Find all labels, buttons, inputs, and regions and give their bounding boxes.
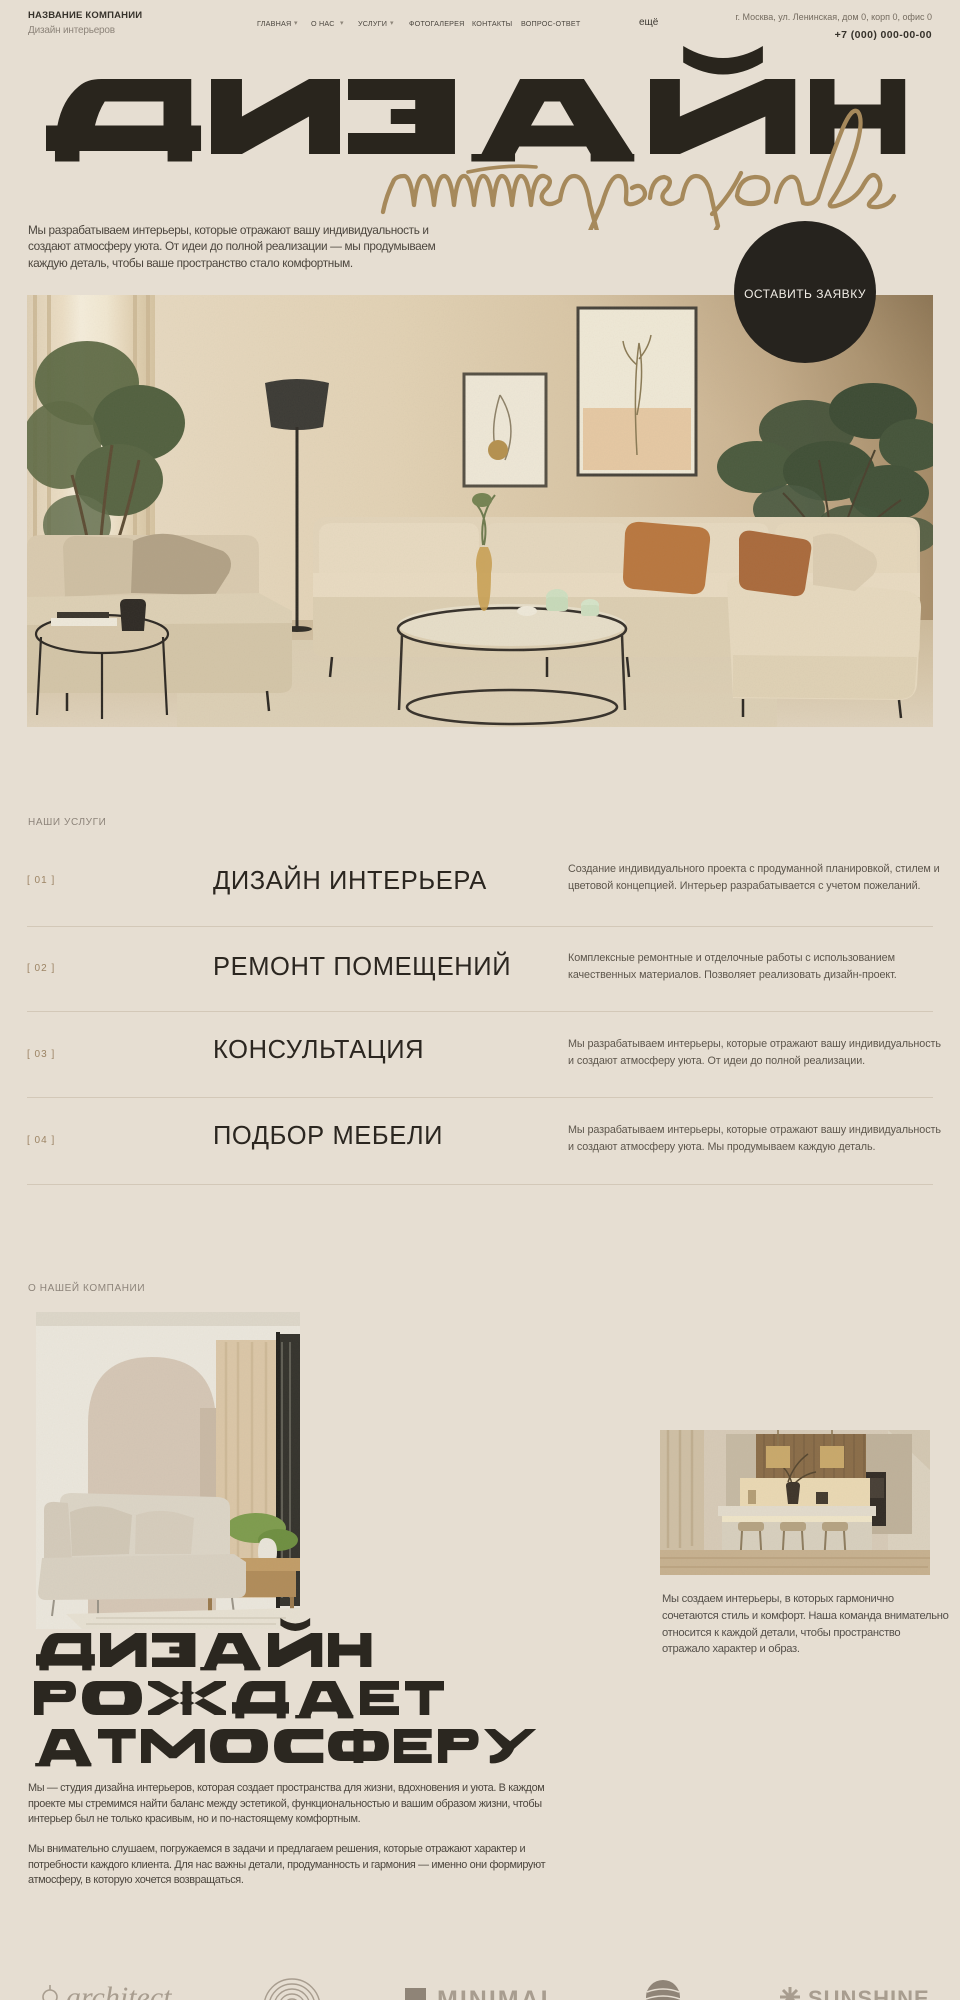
svg-text:SUNSHINE: SUNSHINE	[808, 1986, 930, 2000]
svg-text:MINIMAL: MINIMAL	[437, 1986, 558, 2000]
svg-text:architect: architect	[66, 1981, 172, 2000]
